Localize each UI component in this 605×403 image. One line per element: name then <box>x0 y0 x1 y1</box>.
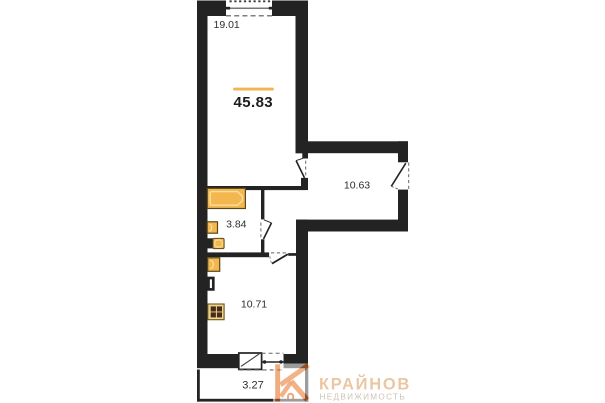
svg-text:45.83: 45.83 <box>234 94 274 111</box>
svg-text:3.84: 3.84 <box>226 219 247 231</box>
svg-text:19.01: 19.01 <box>214 19 240 31</box>
svg-text:НЕДВИЖИМОСТЬ: НЕДВИЖИМОСТЬ <box>320 393 407 402</box>
svg-text:КРАЙНОВ: КРАЙНОВ <box>319 374 411 393</box>
svg-text:10.63: 10.63 <box>344 180 370 192</box>
svg-text:10.71: 10.71 <box>241 299 267 311</box>
svg-text:3.27: 3.27 <box>242 380 263 392</box>
